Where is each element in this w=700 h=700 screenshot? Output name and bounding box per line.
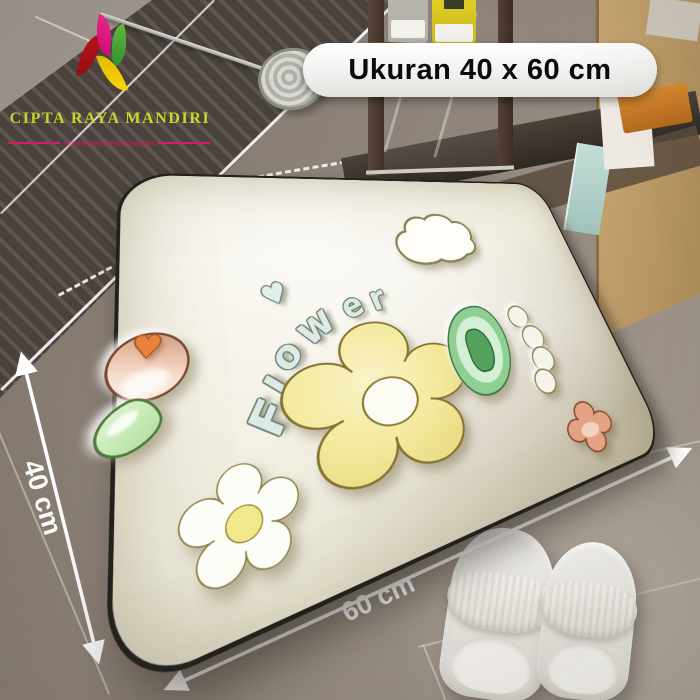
clover-doodle (557, 394, 623, 462)
heart-doodle: ♥ (257, 278, 294, 313)
light-reflection (646, 0, 700, 41)
bottle-label (391, 20, 425, 38)
bottle-cap (444, 0, 464, 9)
tulip-leaf (84, 389, 169, 470)
tagline-smudge (63, 141, 155, 146)
height-arrow (22, 356, 98, 660)
tulip-gloss (120, 363, 172, 401)
dot-doodle (531, 366, 561, 397)
leaf-gloss (103, 407, 141, 441)
logo-tagline-divider (8, 139, 210, 147)
tulip-heart: ♥ (130, 333, 164, 365)
divider-line (8, 142, 60, 144)
size-badge-label: Ukuran 40 x 60 cm (348, 54, 611, 87)
slipper-footbed (449, 632, 535, 697)
mat-letter: e (335, 288, 369, 325)
grout-line (0, 432, 110, 695)
brand-name: CIPTA RAYA MANDIRI (6, 110, 214, 128)
slipper-footbed (546, 639, 621, 697)
cloud-doodle (384, 213, 488, 274)
size-badge: Ukuran 40 x 60 cm (303, 43, 657, 97)
bottle-label (435, 24, 473, 42)
shampoo-bottle-yellow (432, 0, 476, 46)
product-photo: 40 cm 60 cm ♥ F l o w e r (0, 0, 700, 700)
brand-logo: CIPTA RAYA MANDIRI (0, 0, 222, 160)
white-flower (174, 448, 311, 615)
mat-letter: r (364, 281, 391, 316)
shampoo-bottle-gray (388, 0, 428, 44)
slipper-band (539, 578, 640, 641)
divider-line (158, 142, 210, 144)
